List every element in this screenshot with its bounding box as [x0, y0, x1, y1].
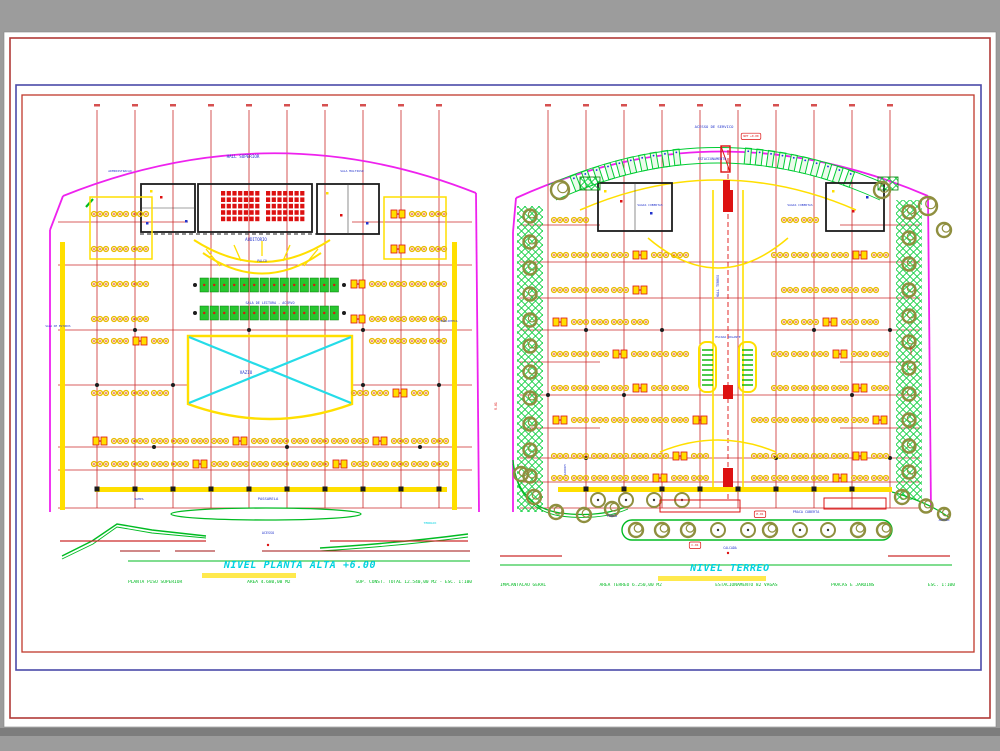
plan-notes-upper: PLANTA PISO SUPERIOR AREA 4.680,00 M2 SU…: [128, 580, 472, 586]
plan-label: VAGAS COBERTAS: [637, 203, 662, 207]
note-text: PLANTA PISO SUPERIOR: [128, 580, 182, 586]
plan-label: R-01: [494, 402, 498, 410]
plan-label: JARDIM: [563, 464, 567, 475]
title-highlight-terreo: [658, 576, 766, 581]
note-text: PRACAS E JARDINS: [831, 583, 874, 589]
plan-label: AUDITORIO: [245, 237, 267, 242]
plan-label: RAMPA: [909, 345, 913, 354]
note-text: AREA 4.680,00 M2: [247, 580, 290, 586]
plan-label: PALCO: [257, 259, 267, 263]
plan-title-upper: NIVEL PLANTA ALTA +6.00: [130, 560, 470, 571]
plan-label: C-01: [691, 543, 698, 547]
cad-sheet: HALL SUPERIORADMINISTRACAOSALA MULTIUSOA…: [0, 0, 1000, 751]
plan-label: ESTACIONAMENTO: [698, 157, 727, 161]
note-text: ESC. 1:100: [928, 583, 955, 589]
note-text: IMPLANTACAO GERAL: [500, 583, 546, 589]
plan-label: NPT +0.00: [743, 134, 758, 138]
plan-label: TERRACO: [424, 521, 437, 525]
title-highlight-upper: [202, 573, 296, 578]
plan-label: BIBLIOTECA: [441, 319, 458, 323]
plan-label: HALL SUPERIOR: [227, 154, 260, 159]
parking-stall: [673, 149, 681, 166]
parking-stall: [744, 148, 751, 164]
plan-title-terreo: NIVEL TERREO: [505, 563, 955, 574]
plan-label: PASSARELA: [258, 496, 279, 501]
plan-label: ADMINISTRACAO: [108, 169, 132, 173]
plan-notes-terreo: IMPLANTACAO GERAL AREA TERREO 6.250,00 M…: [500, 583, 955, 589]
plan-label: PRACA COBERTA: [793, 510, 820, 514]
plan-label: CALCADA: [723, 546, 737, 550]
plan-label: HALL TERREO: [716, 275, 720, 297]
note-text: SUP. CONST. TOTAL 12.540,00 M2 - ESC. 1:…: [355, 580, 472, 586]
plan-label: VAZIO: [240, 370, 253, 375]
note-text: AREA TERREO 6.250,00 M2: [600, 583, 662, 589]
plan-label: PRACA: [607, 514, 617, 518]
plan-label: SALA MULTIUSO: [340, 169, 364, 173]
parking-stall: [755, 149, 763, 166]
plan-label: RAMPA: [134, 497, 143, 501]
plan-label: ACESSO: [262, 531, 274, 535]
cad-canvas: HALL SUPERIORADMINISTRACAOSALA MULTIUSOA…: [0, 0, 1000, 751]
plan-label: ACESSO DE SERVICO: [695, 124, 735, 129]
note-text: ESTACIONAMENTO 82 VAGAS: [715, 583, 777, 589]
plan-label: SALA DE LEITURA - ACERVO: [246, 301, 295, 305]
plan-label: ESCADA ROLANTE: [715, 335, 740, 339]
plan-label: ACESSO: [939, 518, 950, 522]
plan-label: VAGAS COBERTAS: [787, 203, 812, 207]
plan-label: SALA DE ESTUDOS: [45, 324, 71, 328]
plan-label: E-01: [756, 512, 763, 516]
